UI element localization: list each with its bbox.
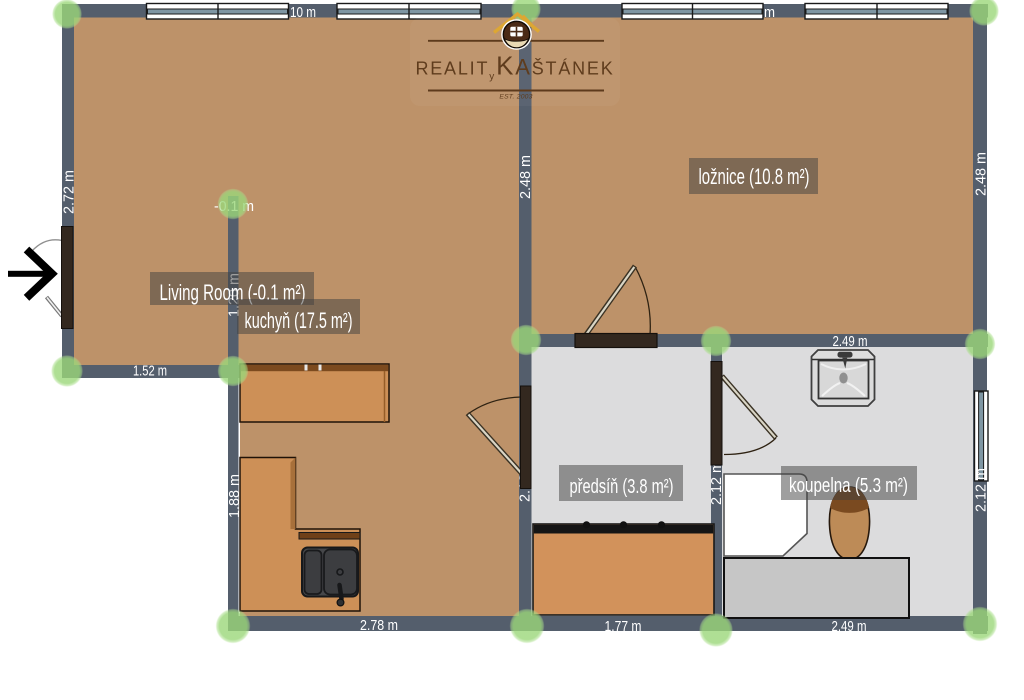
svg-text:předsíň (3.8 m²): předsíň (3.8 m²) [570, 475, 674, 498]
svg-text:1.88 m: 1.88 m [226, 474, 243, 518]
svg-text:ložnice (10.8 m²): ložnice (10.8 m²) [699, 164, 810, 189]
svg-text:koupelna (5.3 m²): koupelna (5.3 m²) [789, 474, 908, 497]
svg-text:1.52 m: 1.52 m [133, 363, 167, 380]
svg-text:EST. 2003: EST. 2003 [499, 94, 532, 101]
svg-text:10 m: 10 m [290, 4, 316, 21]
svg-text:2.12 m: 2.12 m [973, 468, 990, 512]
svg-text:kuchyň (17.5 m²): kuchyň (17.5 m²) [245, 308, 353, 333]
svg-text:2.48 m: 2.48 m [973, 152, 990, 196]
svg-text:m: m [764, 4, 775, 21]
svg-text:2.49 m: 2.49 m [832, 618, 867, 635]
svg-text:2.49 m: 2.49 m [833, 333, 868, 350]
svg-text:2.78 m: 2.78 m [360, 617, 398, 634]
svg-text:2.72 m: 2.72 m [61, 170, 78, 214]
svg-text:1.77 m: 1.77 m [605, 618, 642, 635]
svg-text:2.12 m: 2.12 m [708, 461, 725, 505]
svg-text:2.48 m: 2.48 m [517, 155, 534, 199]
